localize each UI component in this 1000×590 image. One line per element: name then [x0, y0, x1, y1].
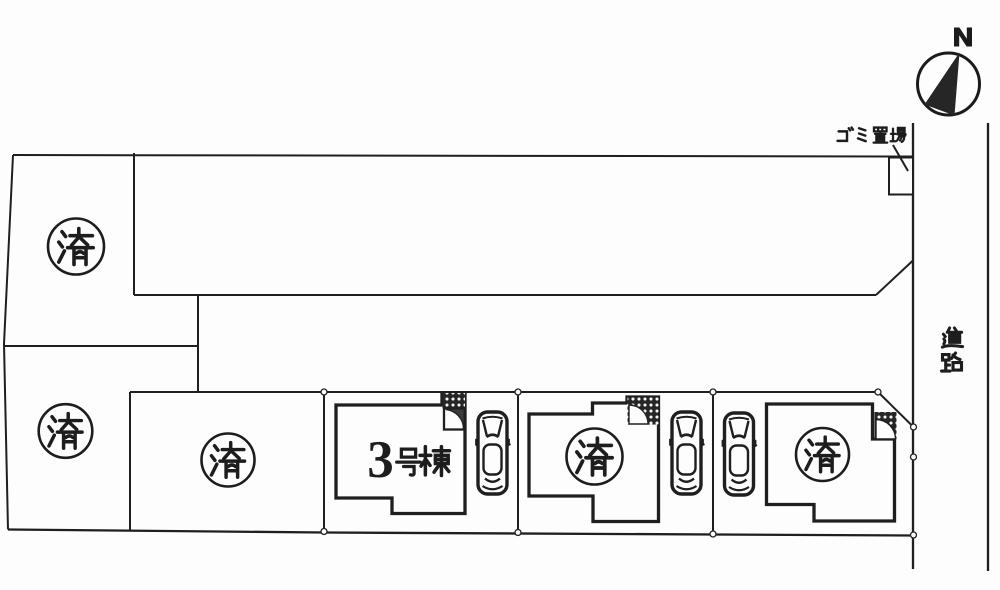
svg-text:3: 3: [367, 431, 394, 489]
